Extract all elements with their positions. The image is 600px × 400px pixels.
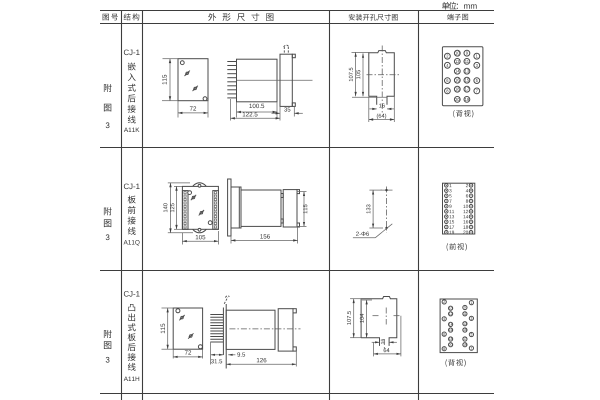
svg-text:14: 14 <box>449 323 453 327</box>
svg-text:4: 4 <box>443 317 445 321</box>
svg-text:17: 17 <box>463 337 467 341</box>
svg-text:17: 17 <box>465 87 470 92</box>
svg-text:14: 14 <box>455 69 460 74</box>
svg-text:18: 18 <box>449 337 453 341</box>
svg-text:11: 11 <box>465 59 470 64</box>
svg-text:13: 13 <box>465 69 470 74</box>
svg-text:20: 20 <box>449 343 453 347</box>
svg-text:11: 11 <box>463 312 467 316</box>
svg-text:9: 9 <box>464 306 466 310</box>
svg-text:1: 1 <box>470 301 472 305</box>
svg-text:2: 2 <box>443 300 445 304</box>
svg-text:6: 6 <box>443 332 445 336</box>
svg-text:10: 10 <box>449 306 453 310</box>
svg-text:15: 15 <box>463 328 467 332</box>
svg-text:3: 3 <box>470 317 472 321</box>
svg-text:12: 12 <box>455 59 460 64</box>
svg-text:12: 12 <box>449 312 453 316</box>
svg-text:7: 7 <box>470 346 472 350</box>
svg-text:20: 20 <box>455 97 460 102</box>
svg-text:18: 18 <box>455 87 460 92</box>
svg-text:16: 16 <box>449 328 453 332</box>
svg-text:13: 13 <box>463 322 467 326</box>
svg-text:19: 19 <box>465 97 470 102</box>
svg-text:5: 5 <box>470 333 472 337</box>
svg-text:15: 15 <box>465 78 470 83</box>
svg-text:16: 16 <box>455 78 460 83</box>
svg-text:10: 10 <box>455 51 460 56</box>
svg-text:8: 8 <box>443 347 445 351</box>
svg-text:19: 19 <box>463 343 467 347</box>
